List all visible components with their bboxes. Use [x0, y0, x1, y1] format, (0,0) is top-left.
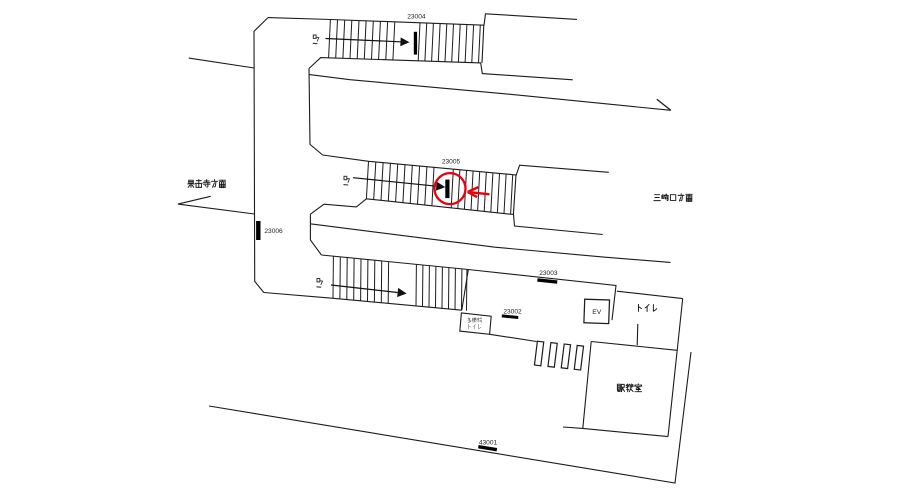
svg-text:23005: 23005 [442, 159, 461, 166]
svg-text:23003: 23003 [539, 270, 558, 277]
svg-text:23006: 23006 [264, 228, 283, 235]
svg-text:23002: 23002 [503, 309, 522, 316]
svg-text:EV: EV [592, 309, 602, 316]
svg-text:23004: 23004 [407, 13, 426, 20]
svg-text:43001: 43001 [479, 439, 498, 446]
